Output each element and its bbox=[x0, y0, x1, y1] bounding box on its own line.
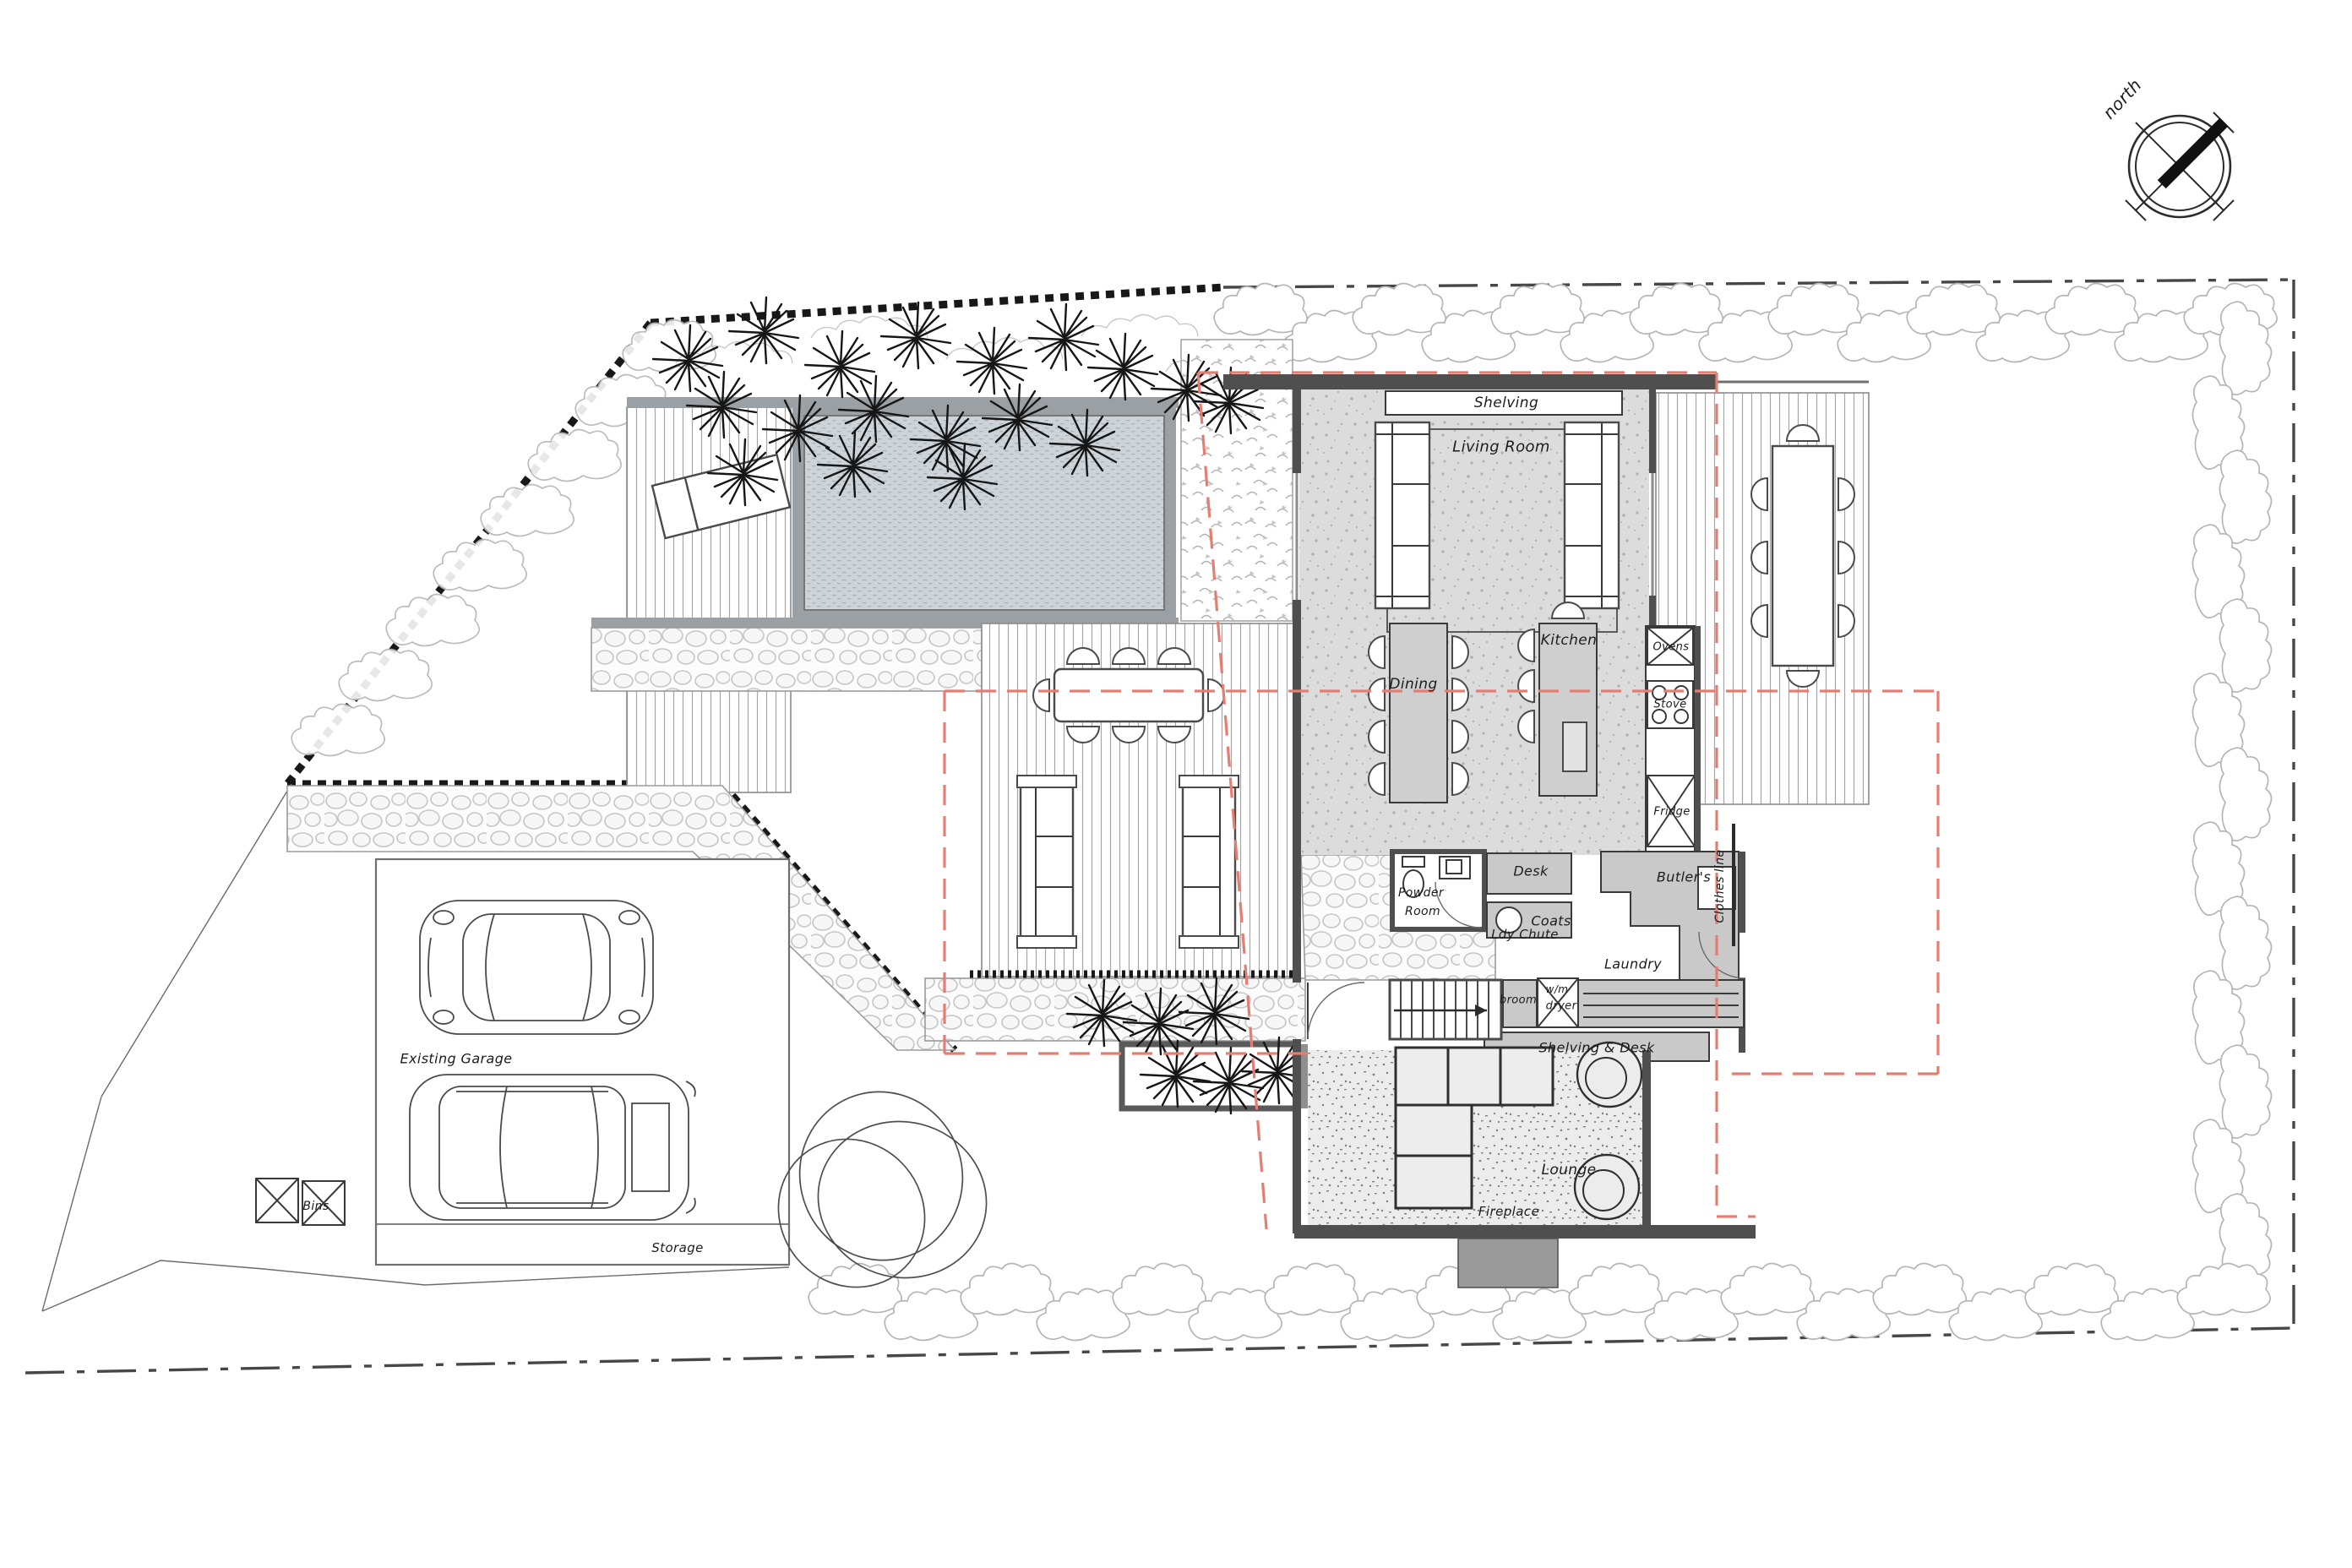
sofa-left bbox=[1375, 422, 1429, 608]
swimming-pool bbox=[792, 404, 1176, 622]
north-arrow-icon bbox=[2126, 112, 2234, 220]
powder-room bbox=[1392, 852, 1484, 929]
stairs bbox=[1390, 980, 1501, 1039]
fridge-icon bbox=[1647, 776, 1695, 847]
washer-dryer-icon bbox=[1538, 978, 1578, 1027]
pool-stone-path bbox=[591, 628, 982, 691]
sofa-right bbox=[1565, 422, 1619, 608]
bins bbox=[256, 1179, 345, 1225]
stove-icon bbox=[1647, 681, 1693, 728]
round-chair-1 bbox=[1577, 1043, 1641, 1107]
desk-unit bbox=[1487, 853, 1571, 894]
kitchen-sink bbox=[1563, 722, 1587, 771]
laundry-bench bbox=[1578, 980, 1744, 1027]
outdoor-sofa-right bbox=[1179, 776, 1239, 948]
lounge-room bbox=[1308, 1043, 1651, 1228]
coats-unit bbox=[1487, 902, 1571, 938]
floor-plan-drawing bbox=[0, 0, 2352, 1568]
broom-closet bbox=[1503, 980, 1537, 1027]
ovens-icon bbox=[1647, 628, 1693, 665]
shelving-unit bbox=[1386, 391, 1622, 415]
hedge-top bbox=[1214, 283, 2277, 362]
hedge-right bbox=[2192, 302, 2271, 1287]
outdoor-deck bbox=[970, 623, 1298, 977]
entry-planter bbox=[1122, 1037, 1311, 1113]
existing-garage-building bbox=[376, 859, 789, 1265]
round-chair-2 bbox=[1575, 1155, 1639, 1219]
outdoor-sofa-left bbox=[1017, 776, 1076, 948]
south-wall bbox=[1294, 1225, 1756, 1239]
site-plan-canvas: northShelvingLiving RoomDiningKitchenOve… bbox=[0, 0, 2352, 1568]
fireplace-unit bbox=[1458, 1239, 1558, 1288]
entry-door bbox=[1308, 983, 1364, 1039]
kitchen-appliances bbox=[1646, 626, 1701, 852]
